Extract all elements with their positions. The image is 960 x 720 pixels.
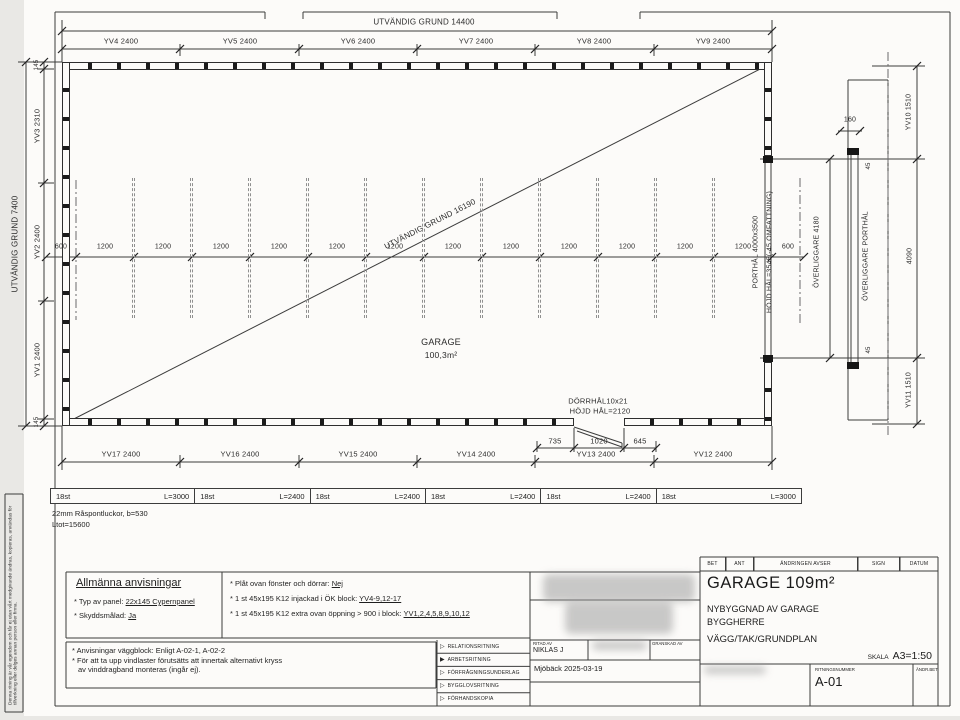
scale-value: A3=1:50 [893,650,932,662]
scale-label: SKALA [868,654,889,661]
room-name: GARAGE [421,337,461,347]
doc-type-row: ▷FÖRHANDSKOPIA [440,693,530,706]
doc-type-label: FÖRFRÅGNINGSUNDERLAG [448,670,520,676]
truss-centerline [712,178,715,318]
dim-top-total: UTVÄNDIG GRUND 14400 [373,18,474,27]
note-wind-2: av vinddragband monteras (ingår ej). [78,665,201,674]
dim-160: 160 [844,117,856,124]
value: Ja [128,611,136,620]
truss-centerline [190,178,193,318]
scale-row: SKALAA3=1:50 [810,646,932,664]
dim-overliggare: ÖVERLIGGARE 4180 [814,216,821,288]
table-cell: 18stL=3000 [51,489,195,503]
bet-label: ÄNDR.BET [916,667,938,672]
len: L=2400 [395,492,420,501]
dim-45-bottom: 45 [866,346,872,353]
dim-yv1: YV1 2400 [33,343,42,378]
table-total-note: Ltot=15600 [52,520,90,529]
dim-yv11: YV11 1510 [906,372,913,408]
doc-type-marker-icon: ▷ [440,696,445,702]
qty: 18st [431,492,445,501]
wall-bottom-right [624,418,772,426]
truss-centerline [596,178,599,318]
truss-centerline [132,178,135,318]
len: L=2400 [510,492,535,501]
note-k12-extra: * 1 st 45x195 K12 extra ovan öppning > 9… [230,609,470,618]
notes-heading: Allmänna anvisningar [76,577,181,589]
value: YV1,2,4,5,8,9,10,12 [404,609,470,618]
dim-yv9: YV9 2400 [696,37,731,46]
doc-type-label: RELATIONSRITNING [448,644,500,650]
dim-stud-spacing: 600 [782,244,794,251]
doc-type-row: ▶ARBETSRITNING [440,653,530,666]
dim-stud-spacing: 600 [55,244,67,251]
konstruerad-av-redacted [592,641,647,650]
dim-yv16: YV16 2400 [221,450,260,459]
wall-bottom-left [62,418,574,426]
wall-top [62,62,772,70]
dim-stud-spacing: 1200 [97,244,113,251]
rev-col-datum: DATUM [900,557,938,571]
note-paint: * Skyddsmålad: Ja [74,611,136,620]
len: L=2400 [625,492,650,501]
drawing-no-label: RITNINGSNUMMER [815,667,855,672]
dim-yv3: YV3 2310 [33,109,42,144]
drawing-sub2: BYGGHERRE [707,617,765,627]
label: * Skyddsmålad: [74,611,128,620]
qty: 18st [546,492,560,501]
garage-drawing-sheet: { "colors": { "ink": "#3c3c3c", "paper":… [0,0,960,720]
qty: 18st [662,492,676,501]
note-plat: * Plåt ovan fönster och dörrar: Nej [230,579,343,588]
dim-stud-spacing: 1200 [561,244,577,251]
stud-block [763,156,773,163]
truss-centerline [654,178,657,318]
copyright-note: Denna ritning är vår egendom och får ej … [9,499,20,705]
doc-type-label: ARBETSRITNING [448,657,491,663]
stud-block [763,355,773,362]
dim-yv8: YV8 2400 [577,37,612,46]
label: * Plåt ovan fönster och dörrar: [230,579,332,588]
port-height-label: HÖJD HÅL=3545(-45 OMFATTNING) [767,191,774,313]
dim-stud-spacing: 1200 [329,244,345,251]
stud-block [847,362,859,369]
company-info-redacted [565,602,673,634]
dim-yv2: YV2 2400 [33,225,42,260]
dim-door-1020: 1020 [590,437,608,446]
timber-table: 18stL=3000 18stL=2400 18stL=2400 18stL=2… [50,488,802,504]
label: * Typ av panel: [74,597,126,606]
dim-stud-spacing: 1200 [271,244,287,251]
dim-yv15: YV15 2400 [339,450,378,459]
dim-door-645: 645 [633,437,646,446]
doc-type-label: FÖRHANDSKOPIA [448,696,494,702]
wall-right-top [764,62,772,156]
dim-door-735: 735 [548,437,561,446]
rev-col-bet: BET [700,557,726,571]
dim-4090: 4090 [907,248,914,264]
table-cell: 18stL=2400 [541,489,656,503]
dim-yv10: YV10 1510 [906,94,913,130]
dim-stud-spacing: 1200 [619,244,635,251]
truss-centerline [306,178,309,318]
dim-yv6: YV6 2400 [341,37,376,46]
len: L=3000 [771,492,796,501]
note-k12: * 1 st 45x195 K12 injackad i ÖK block: Y… [230,594,401,603]
dim-yv12: YV12 2400 [694,450,733,459]
company-logo-redacted [543,574,695,602]
place-date: Mjöbäck 2025-03-19 [534,664,602,673]
len: L=3000 [164,492,189,501]
drawing-no-value: A-01 [815,674,842,689]
rev-col-avser: ÄNDRINGEN AVSER [754,557,858,571]
arbetsnummer-redacted [704,666,766,674]
note-wall: * Anvisningar väggblock: Enligt A-02-1, … [72,646,225,655]
table-cell: 18stL=2400 [426,489,541,503]
qty: 18st [56,492,70,501]
drawing-sub1: NYBYGGNAD AV GARAGE [707,604,819,614]
dim-yv7: YV7 2400 [459,37,494,46]
port-label: PORTHÅL 4000x3500 [753,216,760,289]
doc-type-marker-icon: ▶ [440,657,445,663]
note-wind-1: * För att ta upp vindlaster förutsätts a… [72,656,282,665]
dim-yv5: YV5 2400 [223,37,258,46]
dim-left-total: UTVÄNDIG GRUND 7400 [11,196,20,293]
rev-col-sign: SIGN [858,557,900,571]
dim-145-top: 145 [34,60,40,71]
truss-centerline [248,178,251,318]
label: * 1 st 45x195 K12 injackad i ÖK block: [230,594,359,603]
qty: 18st [316,492,330,501]
dim-yv17: YV17 2400 [102,450,141,459]
dim-yv14: YV14 2400 [457,450,496,459]
drawing-stage: UTVÄNDIG GRUND 14400 YV4 2400 YV5 2400 Y… [0,0,960,720]
drawing-title: GARAGE 109m² [707,574,835,593]
doc-type-marker-icon: ▷ [440,670,445,676]
ritad-av-value: NIKLAS J [533,647,563,654]
truss-centerline [538,178,541,318]
table-cell: 18stL=2400 [311,489,426,503]
dim-yv4: YV4 2400 [104,37,139,46]
room-area: 100,3m² [425,350,458,360]
label: * 1 st 45x195 K12 extra ovan öppning > 9… [230,609,404,618]
value: YV4-9,12-17 [359,594,401,603]
dim-stud-spacing: 1200 [213,244,229,251]
truss-centerline [422,178,425,318]
table-material-note: 22mm Råspontluckor, b=530 [52,509,148,518]
value: 22x145 Cypernpanel [126,597,195,606]
wall-right-bottom [764,362,772,426]
drawing-sub3: VÄGG/TAK/GRUNDPLAN [707,634,817,645]
doc-type-marker-icon: ▷ [440,644,445,650]
granskad-av-label: GRANSKAD AV [652,641,683,646]
dim-stud-spacing: 1200 [387,244,403,251]
stud-block [847,148,859,155]
qty: 18st [200,492,214,501]
dim-45-top: 45 [866,162,872,169]
dim-yv13: YV13 2400 [577,450,616,459]
revision-header: BET ANT ÄNDRINGEN AVSER SIGN DATUM [700,557,938,571]
truss-centerline [480,178,483,318]
dim-stud-spacing: 1200 [155,244,171,251]
value: Nej [332,579,343,588]
len: L=2400 [279,492,304,501]
dim-stud-spacing: 1200 [677,244,693,251]
rev-col-ant: ANT [726,557,754,571]
truss-centerline [364,178,367,318]
detail-label: ÖVERLIGGARE PORTHÅL [863,211,870,301]
table-cell: 18stL=2400 [195,489,310,503]
door-label-2: HÖJD HÅL=2120 [570,407,631,416]
dim-stud-spacing: 1200 [445,244,461,251]
doc-type-row: ▷FÖRFRÅGNINGSUNDERLAG [440,666,530,679]
doc-type-label: BYGGLOVSRITNING [448,683,499,689]
doc-type-row: ▷BYGGLOVSRITNING [440,680,530,693]
doc-type-row: ▷RELATIONSRITNING [440,640,530,653]
table-cell: 18stL=3000 [657,489,801,503]
door-label-1: DÖRRHÅL10x21 [568,397,628,406]
ritad-av-label: RITAD AV [533,641,552,646]
dim-stud-spacing: 1200 [503,244,519,251]
dim-145-bottom: 145 [34,417,40,428]
doc-type-marker-icon: ▷ [440,683,445,689]
dim-stud-spacing: 1200 [735,244,751,251]
note-panel: * Typ av panel: 22x145 Cypernpanel [74,597,195,606]
